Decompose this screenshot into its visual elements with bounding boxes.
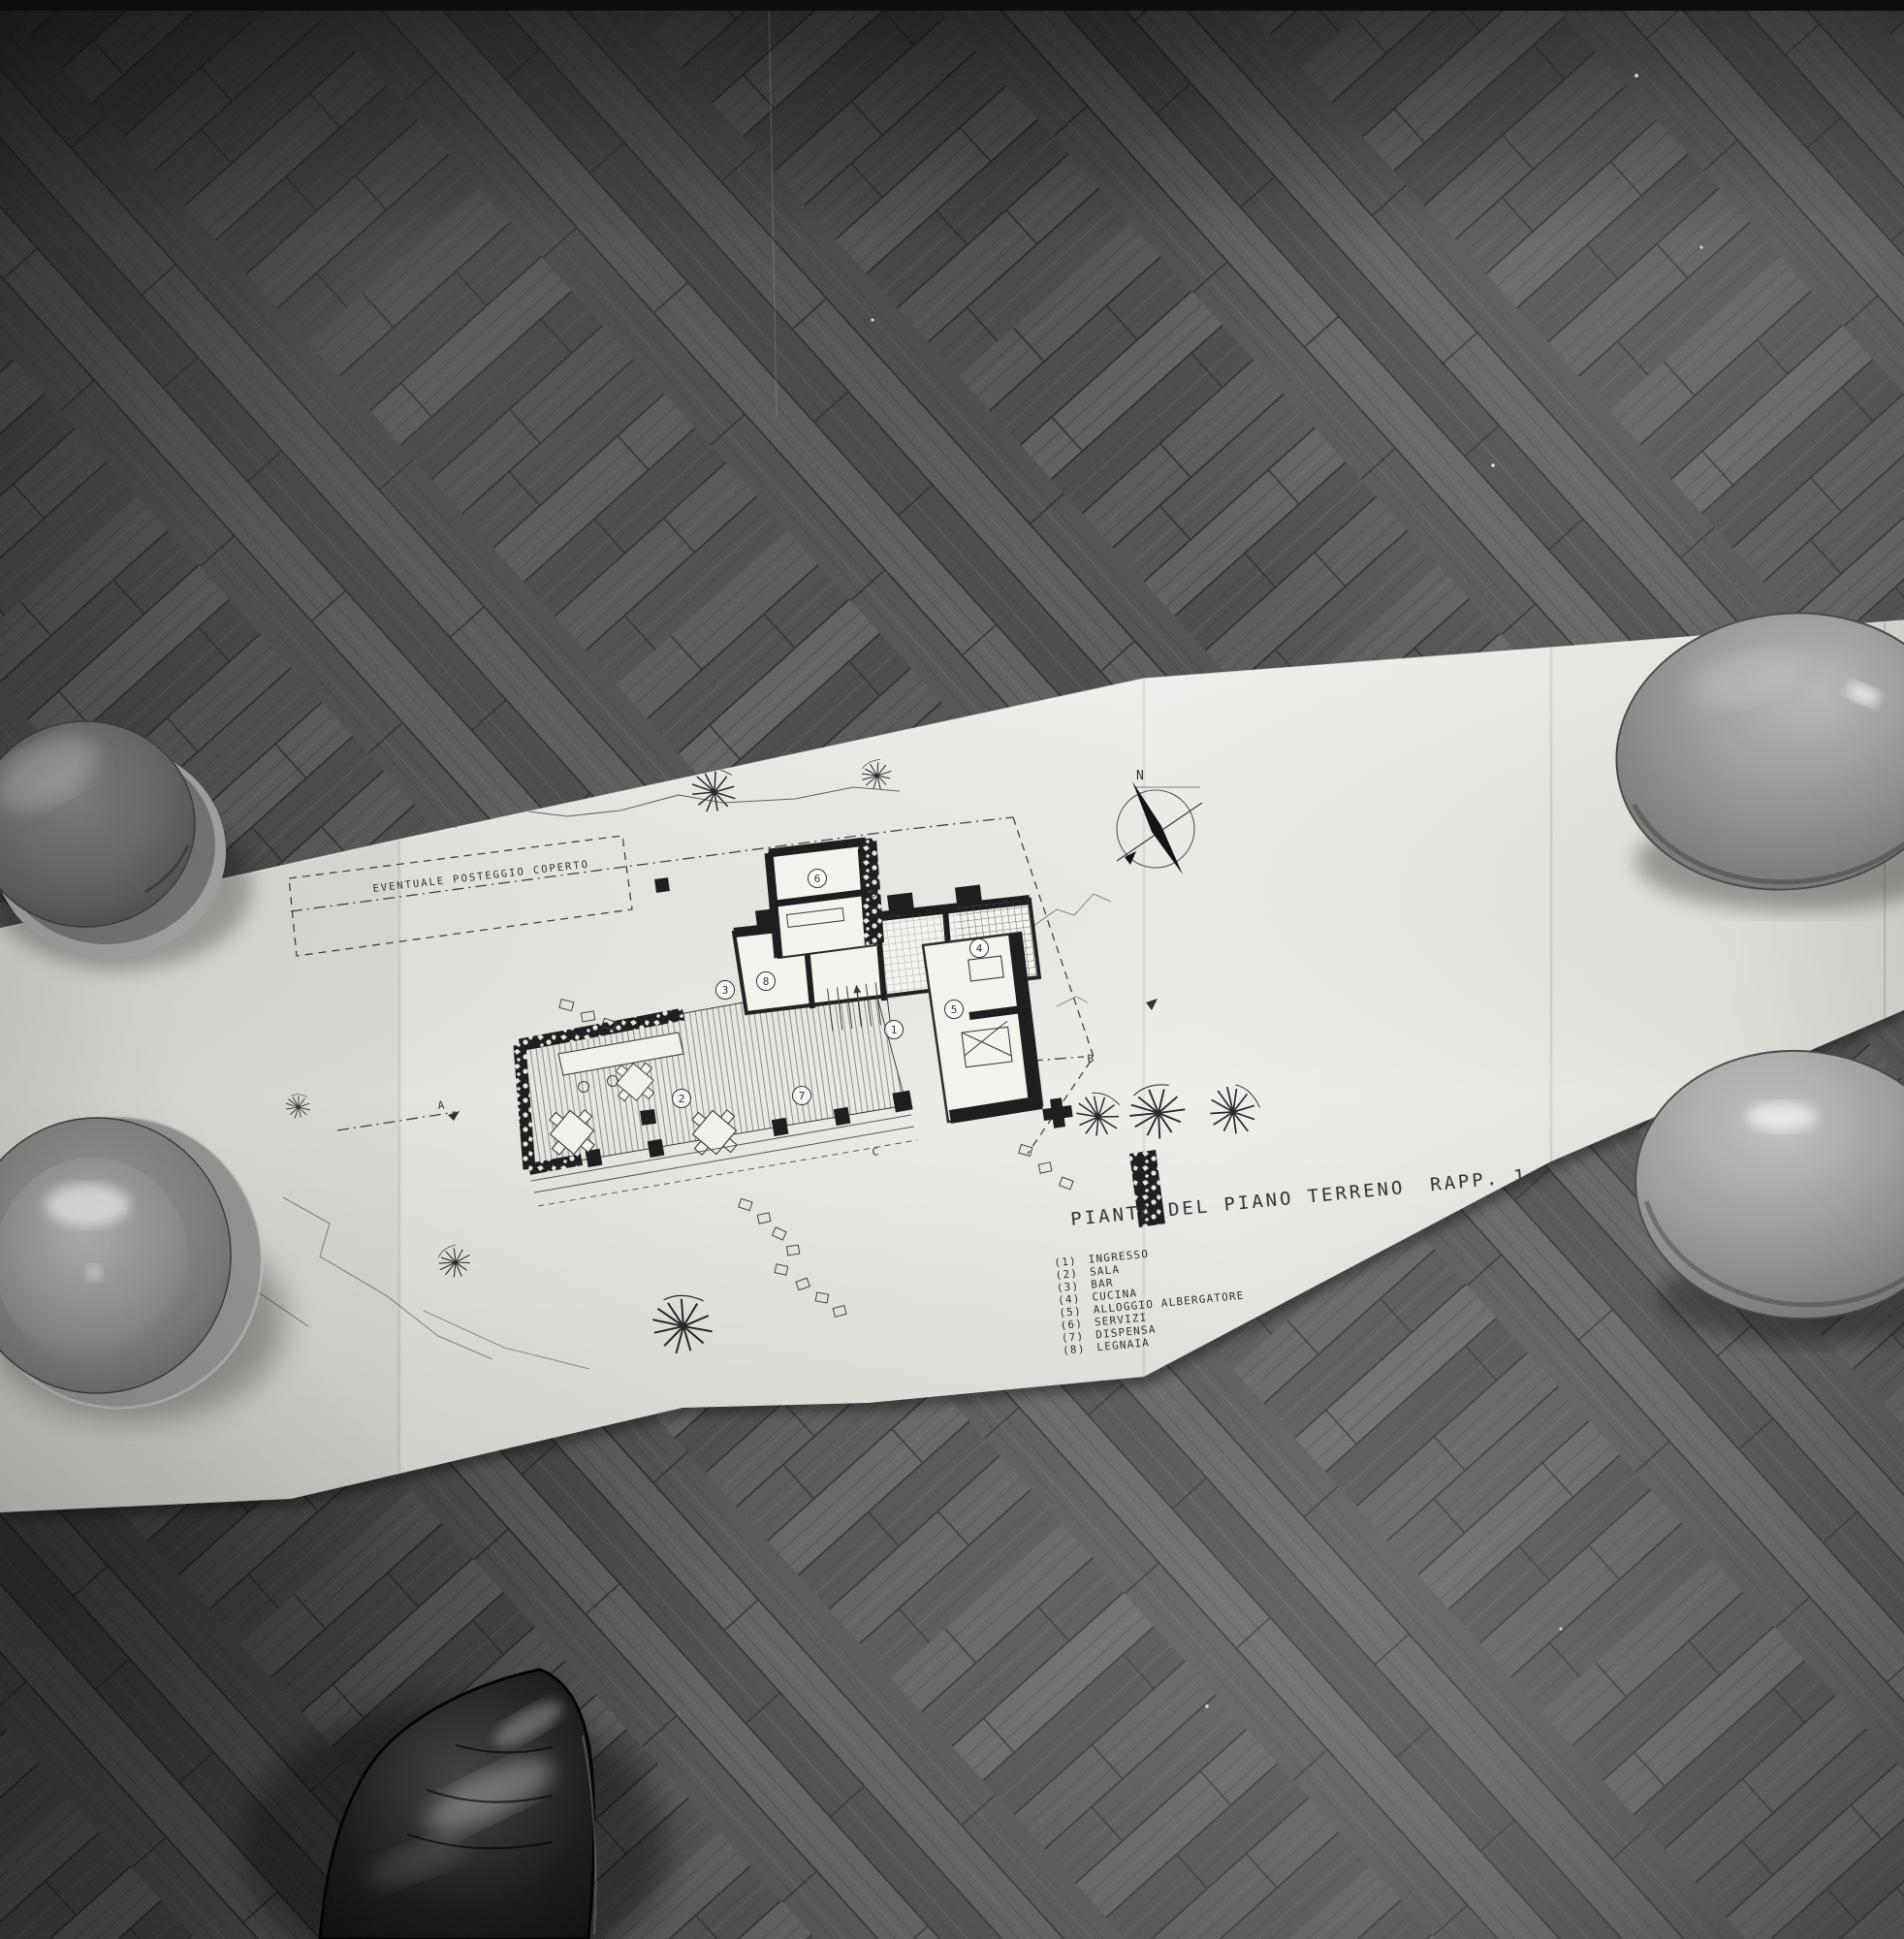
photograph: N A B C D 1 2 3 4 5 6 7 8 EVENTUALE POST…	[0, 0, 1904, 1939]
film-edge	[0, 0, 1904, 11]
film-grain	[0, 0, 1904, 1939]
